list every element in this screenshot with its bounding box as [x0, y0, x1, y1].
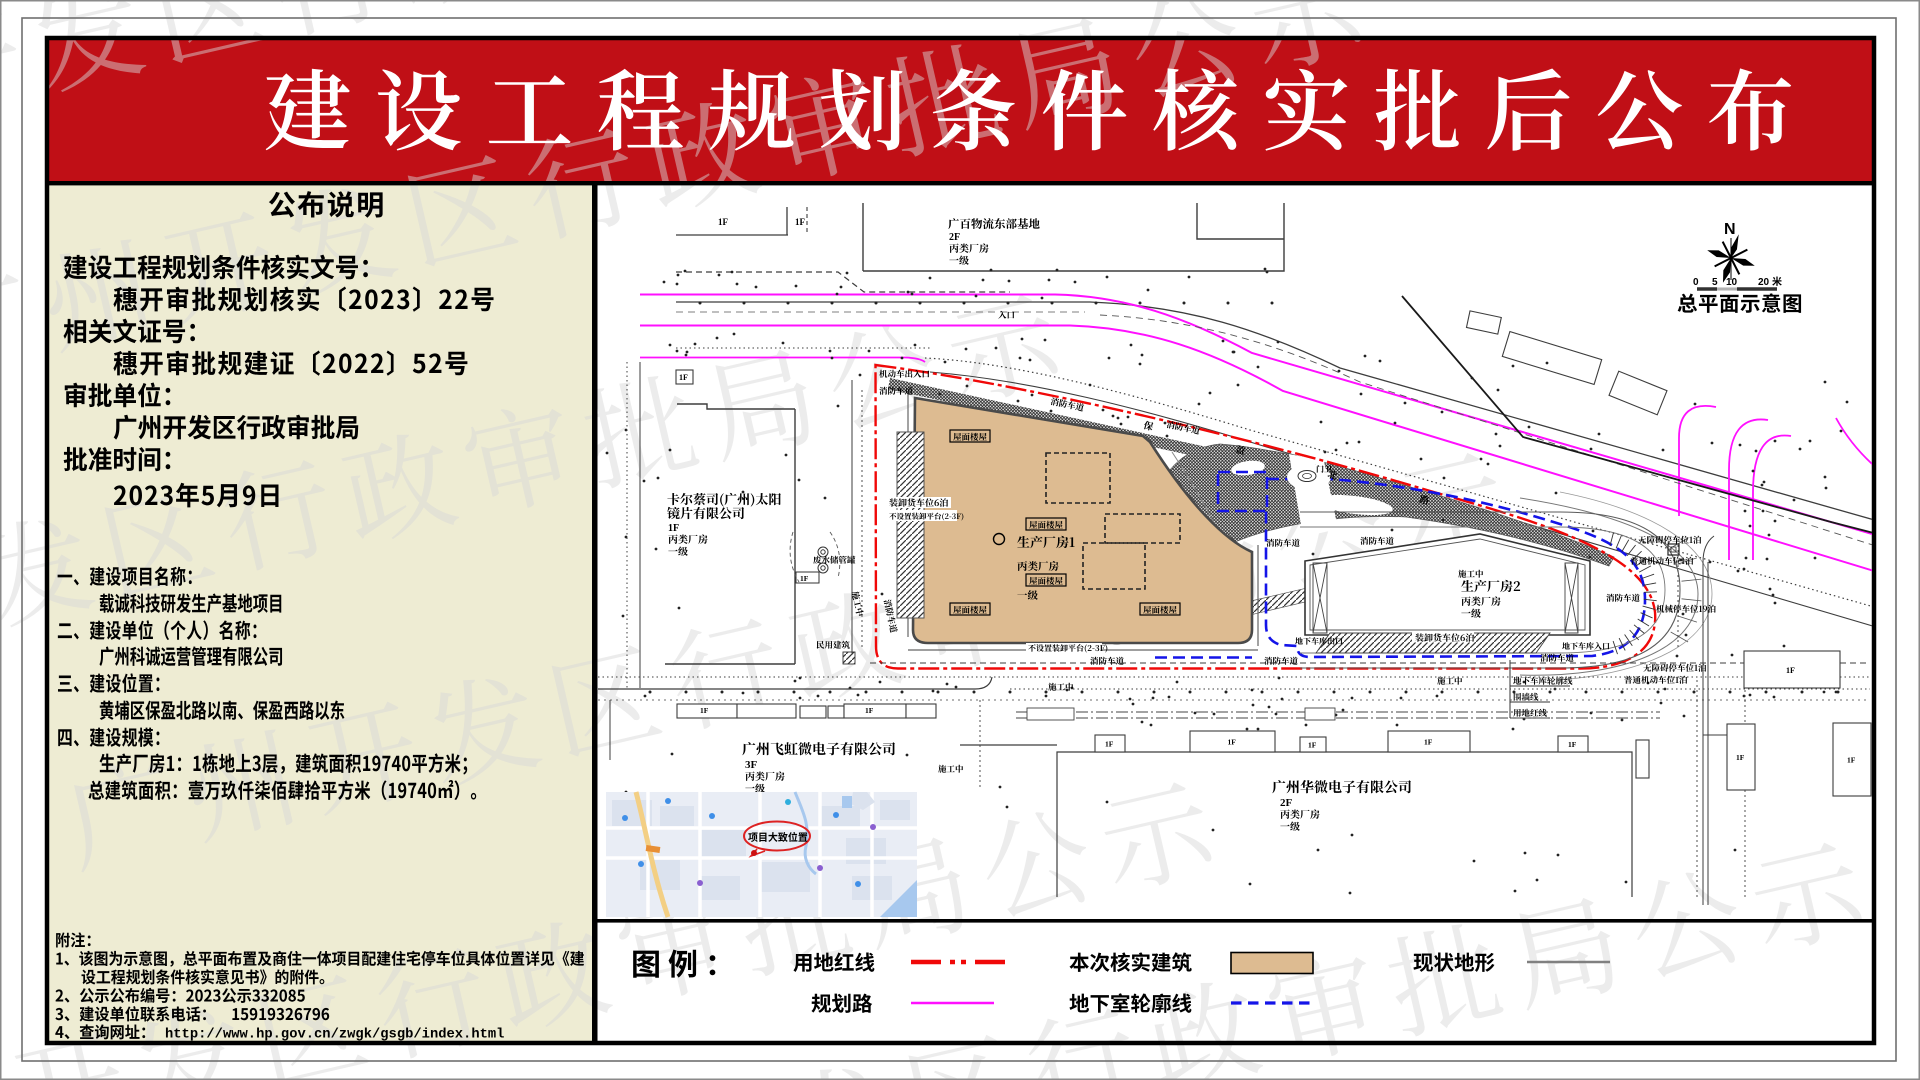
- svg-text:2F: 2F: [1280, 797, 1293, 809]
- svg-text:0: 0: [1693, 277, 1699, 288]
- svg-text:1F: 1F: [1736, 753, 1745, 762]
- svg-text:1F: 1F: [718, 217, 729, 227]
- svg-text:1F: 1F: [679, 373, 688, 382]
- svg-text:1F: 1F: [800, 574, 809, 583]
- svg-text:1F: 1F: [795, 217, 806, 227]
- svg-text:1F: 1F: [1568, 740, 1577, 749]
- svg-text:2F: 2F: [949, 232, 960, 243]
- svg-text:1F: 1F: [1105, 740, 1114, 749]
- svg-text:1F: 1F: [668, 523, 679, 534]
- svg-text:1F: 1F: [700, 706, 709, 715]
- svg-text:http://www.hp.gov.cn/zwgk/gsgb: http://www.hp.gov.cn/zwgk/gsgb/index.htm…: [165, 1027, 504, 1043]
- svg-text:5: 5: [1712, 277, 1718, 288]
- svg-text:1F: 1F: [1786, 666, 1795, 675]
- svg-text:20: 20: [1758, 277, 1770, 288]
- svg-text:1F: 1F: [865, 706, 874, 715]
- svg-text:1F: 1F: [1228, 738, 1237, 747]
- svg-text:10: 10: [1726, 277, 1738, 288]
- svg-text:1F: 1F: [1308, 741, 1317, 750]
- svg-text:N: N: [1724, 221, 1736, 238]
- svg-text:3F: 3F: [745, 759, 758, 771]
- svg-text:1F: 1F: [1847, 756, 1856, 765]
- svg-text:1F: 1F: [1424, 738, 1433, 747]
